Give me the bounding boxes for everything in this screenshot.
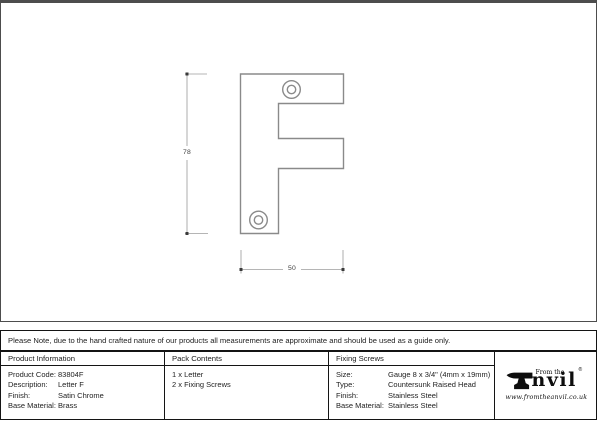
height-dimension-label: 78 <box>182 149 192 156</box>
list-item: 1 x Letter <box>172 370 328 380</box>
row-value: 83804F <box>58 370 83 380</box>
width-dimension-label: 50 <box>287 265 297 272</box>
product-information-header: Product Information <box>1 352 164 366</box>
table-row: Base Material: Brass <box>8 401 164 411</box>
row-label: Size: <box>336 370 388 380</box>
fixing-screws-header: Fixing Screws <box>329 352 494 366</box>
pack-contents-header: Pack Contents <box>165 352 328 366</box>
from-the-anvil-logo: From the nvil ® www.fromtheanvil.co.uk <box>506 368 586 404</box>
pack-contents-column: Pack Contents 1 x Letter 2 x Fixing Scre… <box>164 352 328 419</box>
row-value: Gauge 8 x 3/4" (4mm x 19mm) <box>388 370 490 380</box>
spec-table: Product Information Product Code: 83804F… <box>0 351 597 420</box>
table-row: Base Material: Stainless Steel <box>336 401 494 411</box>
note-text: Please Note, due to the hand crafted nat… <box>8 336 450 345</box>
product-information-column: Product Information Product Code: 83804F… <box>1 352 164 419</box>
table-row: Size: Gauge 8 x 3/4" (4mm x 19mm) <box>336 370 494 380</box>
row-label: Type: <box>336 380 388 390</box>
row-label: Product Code: <box>8 370 58 380</box>
row-label: Description: <box>8 380 58 390</box>
brand-logo-cell: From the nvil ® www.fromtheanvil.co.uk <box>494 352 596 419</box>
list-item: 2 x Fixing Screws <box>172 380 328 390</box>
table-row: Description: Letter F <box>8 380 164 390</box>
row-value: Countersunk Raised Head <box>388 380 476 390</box>
table-row: Finish: Satin Chrome <box>8 391 164 401</box>
table-row: Finish: Stainless Steel <box>336 391 494 401</box>
registered-trademark-icon: ® <box>579 367 583 373</box>
table-row: Product Code: 83804F <box>8 370 164 380</box>
anvil-icon <box>506 371 533 391</box>
note-bar: Please Note, due to the hand crafted nat… <box>0 330 597 351</box>
row-label: Finish: <box>336 391 388 401</box>
pack-contents-body: 1 x Letter 2 x Fixing Screws <box>165 366 328 391</box>
row-value: Stainless Steel <box>388 401 438 411</box>
table-row: Type: Countersunk Raised Head <box>336 380 494 390</box>
logo-brand-text: nvil <box>532 368 577 392</box>
row-label: Finish: <box>8 391 58 401</box>
row-value: Stainless Steel <box>388 391 438 401</box>
logo-website: www.fromtheanvil.co.uk <box>506 394 586 401</box>
fixing-screws-column: Fixing Screws Size: Gauge 8 x 3/4" (4mm … <box>328 352 494 419</box>
row-label: Base Material: <box>8 401 58 411</box>
technical-drawing-panel <box>0 0 597 322</box>
row-value: Letter F <box>58 380 84 390</box>
product-information-body: Product Code: 83804F Description: Letter… <box>1 366 164 411</box>
fixing-screws-body: Size: Gauge 8 x 3/4" (4mm x 19mm) Type: … <box>329 366 494 411</box>
row-value: Brass <box>58 401 77 411</box>
row-value: Satin Chrome <box>58 391 104 401</box>
row-label: Base Material: <box>336 401 388 411</box>
